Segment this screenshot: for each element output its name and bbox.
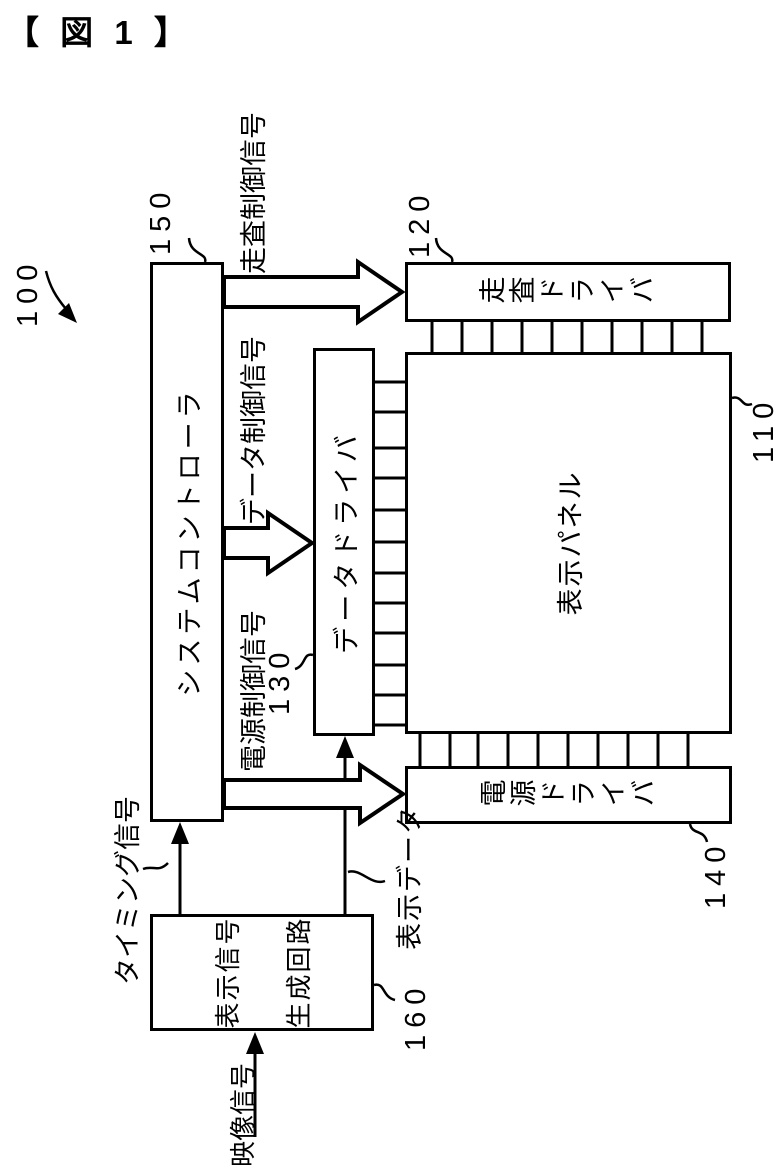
ref-120-connector — [436, 238, 452, 262]
system-controller-box: システムコントローラ — [150, 262, 224, 822]
block-diagram: システムコントローラ 走査ドライバ 表示パネル データドライバ 電源ドライバ 表… — [0, 0, 784, 1169]
data-driver-panel-bus — [375, 382, 405, 725]
data-driver-box: データドライバ — [313, 348, 375, 736]
timing-label-connector — [143, 863, 168, 869]
panel-scan-driver-bus — [432, 322, 702, 352]
video-signal-label: 映像信号 — [223, 1063, 260, 1167]
ref-label-110: 110 — [748, 396, 781, 463]
system-controller-label: システムコントローラ — [168, 387, 207, 696]
display-signal-generator-label-line1: 表示信号 — [208, 916, 245, 1028]
video-arrowhead-icon — [246, 1032, 264, 1054]
display-signal-generator-label-line2: 生成回路 — [279, 916, 316, 1028]
scan-driver-label: 走査ドライバ — [478, 273, 658, 312]
data-control-signal-label: データ制御信号 — [232, 336, 271, 525]
ref-label-160: 160 — [400, 982, 433, 1051]
ref-label-120: 120 — [404, 189, 437, 258]
display-signal-generator-label: 表示信号 生成回路 — [208, 916, 316, 1028]
display-panel-label: 表示パネル — [549, 471, 588, 616]
display-data-label: 表示データ — [388, 805, 427, 950]
scan-driver-box: 走査ドライバ — [405, 262, 731, 322]
power-driver-box: 電源ドライバ — [405, 766, 732, 824]
display-signal-generator-box: 表示信号 生成回路 — [150, 914, 374, 1031]
timing-signal-label: タイミング信号 — [106, 796, 145, 985]
power-driver-panel-bus — [420, 734, 688, 766]
display-panel-box: 表示パネル — [405, 352, 732, 734]
display-data-arrowhead-icon — [336, 736, 354, 758]
ref-label-130: 130 — [264, 646, 297, 715]
ref-label-100: 100 — [12, 258, 45, 327]
scan-control-signal-label: 走査制御信号 — [232, 112, 271, 274]
data-driver-label: データドライバ — [325, 430, 364, 653]
power-driver-label: 電源ドライバ — [479, 776, 659, 815]
ref-100-arrowhead-icon — [58, 303, 77, 323]
patent-figure-page: 【 図 1 】 — [0, 0, 784, 1169]
ref-160-connector — [374, 985, 395, 1000]
timing-arrowhead-icon — [171, 822, 189, 844]
ref-150-connector — [189, 238, 205, 262]
power-control-block-arrow — [224, 765, 403, 823]
display-data-label-connector — [348, 871, 385, 881]
ref-label-150: 150 — [145, 186, 178, 255]
ref-130-connector — [295, 655, 313, 669]
ref-100-arrow-curve — [46, 271, 66, 309]
ref-label-140: 140 — [700, 840, 733, 909]
